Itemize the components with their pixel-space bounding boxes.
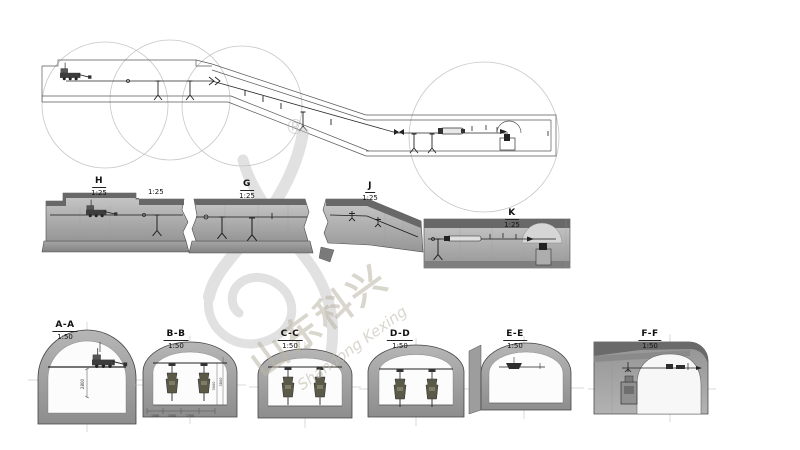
section-label-dd: D-D 1:50 (387, 321, 413, 350)
section-scale: 1:25 (239, 191, 255, 200)
section-scale: 1:50 (278, 341, 303, 350)
section-title: A-A (52, 321, 77, 332)
section-title: E-E (503, 330, 527, 341)
cross-section-aa: 2800 (28, 322, 146, 432)
bb-dim-right-2: 3800 (219, 378, 223, 387)
section-scale: 1:25 (504, 220, 520, 229)
cross-section-bb: 3000 3800 1500 1000 1700 (134, 336, 246, 424)
section-label-g: G 1:25 (239, 171, 255, 200)
section-scale: 1:50 (503, 341, 527, 350)
section-g-drawing (189, 199, 313, 253)
bb-dim-bottom-2: 1000 (168, 414, 176, 418)
aa-dim-text: 2800 (80, 378, 85, 389)
section-k-cabinet (536, 249, 551, 265)
drawing-canvas: ® (0, 0, 800, 450)
section-scale: 1:50 (52, 332, 77, 341)
section-scale: 1:25 (91, 188, 107, 197)
section-scale: 1:50 (164, 341, 189, 350)
section-title: B-B (164, 330, 189, 341)
drawing-sheet: ® (0, 0, 800, 450)
section-title: K (505, 209, 518, 220)
section-label-bb: B-B 1:50 (164, 321, 189, 350)
section-scale: 1:50 (387, 341, 413, 350)
section-h-drawing (42, 193, 189, 252)
bb-dim-bottom-1: 1500 (151, 414, 159, 418)
bb-dim-bottom-3: 1700 (186, 414, 194, 418)
section-label-cc: C-C 1:50 (278, 321, 303, 350)
section-title: F-F (638, 330, 661, 341)
section-title: J (365, 182, 375, 193)
section-title: D-D (387, 330, 413, 341)
section-label-k: K 1:25 (504, 200, 520, 229)
section-title: C-C (278, 330, 303, 341)
section-label-j: J 1:25 (362, 173, 378, 202)
section-label-ff: F-F 1:50 (638, 321, 661, 350)
section-title: G (240, 180, 254, 191)
section-label-h: H 1:25 (91, 168, 107, 197)
section-label-aa: A-A 1:50 (52, 312, 77, 341)
cross-section-dd (359, 338, 473, 426)
bb-dim-right-1: 3000 (212, 382, 216, 391)
section-scale: 1:25 (362, 193, 378, 202)
ff-arch-opening (637, 354, 701, 414)
section-k-drawing (424, 219, 570, 268)
section-label-ee: E-E 1:50 (503, 321, 527, 350)
section-title: H (92, 177, 106, 188)
section-scale: 1:50 (638, 341, 661, 350)
plan-drill-rig-icon (60, 63, 91, 81)
extra-scale-label: 1:25 (148, 188, 164, 196)
section-j-drawing (319, 199, 423, 262)
registered-mark: ® (285, 115, 305, 139)
